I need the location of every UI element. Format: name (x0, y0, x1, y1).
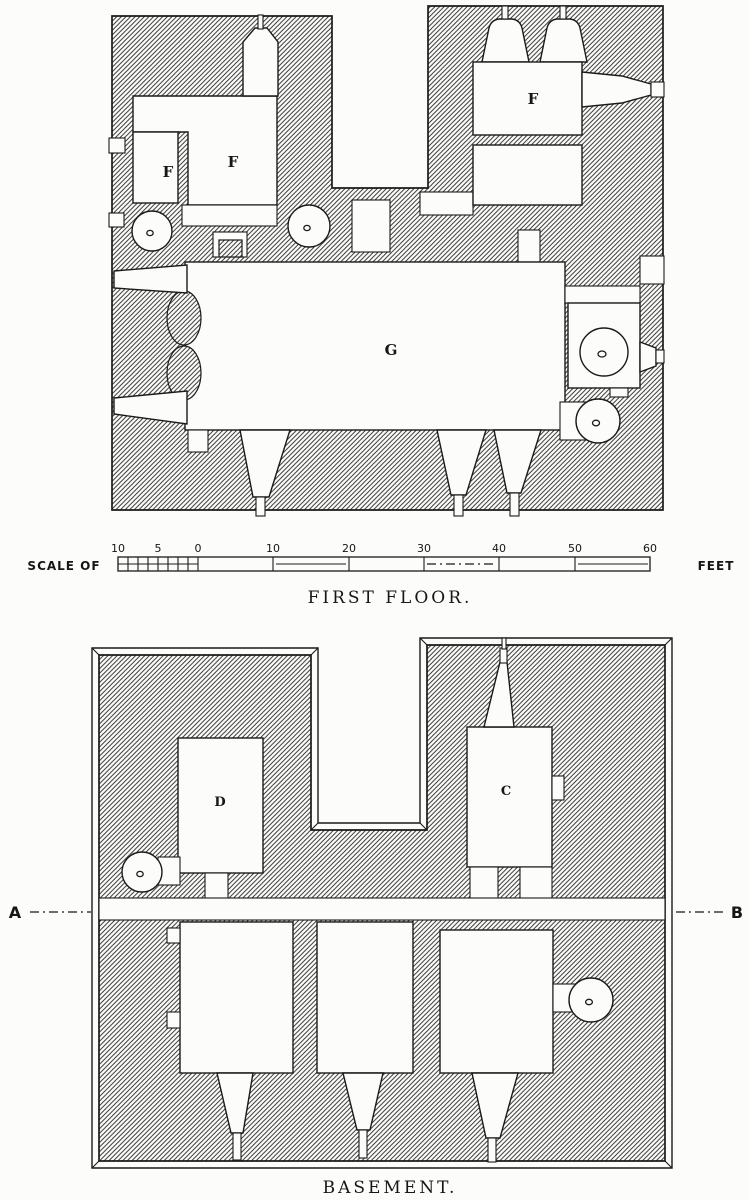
first-floor-caption: FIRST FLOOR. (308, 588, 473, 608)
scale-tick: 50 (568, 542, 582, 555)
scale-unit: FEET (698, 559, 735, 573)
corridor (182, 205, 277, 226)
scale-tick: 5 (155, 542, 162, 555)
scale-tick: 10 (111, 542, 125, 555)
scale-tick: 20 (342, 542, 356, 555)
spiral-stair-icon (122, 852, 162, 892)
wall-recess (167, 1012, 180, 1028)
wall-slit (258, 15, 263, 29)
spiral-stair-icon (569, 978, 613, 1022)
basement-caption: BASEMENT. (323, 1178, 458, 1198)
wall-recess (188, 430, 208, 452)
room-label-f-northeast: F (528, 90, 539, 108)
spiral-stair-icon (580, 328, 628, 376)
room-outline (317, 922, 413, 1073)
scale-tick: 30 (417, 542, 431, 555)
room-label-g: G (385, 341, 398, 359)
wall-slit (502, 6, 508, 19)
room-label-f-closet: F (163, 163, 174, 181)
room-outline (180, 922, 293, 1073)
doorway (552, 776, 564, 800)
room-label-c: C (501, 784, 511, 799)
spiral-stair-icon (288, 205, 330, 247)
wall-slit (560, 6, 566, 19)
passage (420, 192, 473, 215)
scale-bar: SCALE OF FEET 10 5 (27, 542, 734, 573)
wall-slit (502, 638, 506, 649)
scale-tick-labels: 10 5 0 10 20 30 40 50 60 (111, 542, 657, 555)
first-floor-plan: F F F G (109, 6, 664, 516)
passage (205, 873, 228, 900)
passage (99, 898, 665, 920)
wall-recess (167, 928, 180, 943)
room-label-f-hall: F (228, 153, 239, 171)
scale-tick: 0 (195, 542, 202, 555)
doorway (610, 388, 628, 397)
passage (352, 200, 390, 252)
scale-prefix: SCALE OF (27, 559, 100, 573)
room-outline (185, 262, 565, 430)
room-label-d: D (214, 795, 225, 810)
wall-slit (233, 1133, 241, 1160)
corridor (565, 286, 640, 303)
wall-slit (359, 1130, 367, 1158)
window-embrasure (640, 342, 656, 372)
engraved-floor-plans: F F F G SCALE OF FEET (0, 0, 750, 1200)
scale-tick: 10 (266, 542, 280, 555)
wall-slit (488, 1138, 496, 1162)
hearth-inner (219, 240, 242, 257)
spiral-stair-icon (576, 399, 620, 443)
doorway (518, 230, 540, 262)
basement-plan: D C (92, 638, 672, 1168)
wall-slit (500, 648, 507, 663)
wall-gap (640, 256, 664, 284)
wall-bulge (167, 291, 201, 345)
section-marker-b: B (731, 903, 743, 922)
wall-slit (510, 493, 519, 516)
wall-slit (256, 497, 265, 516)
wall-slit (651, 82, 664, 97)
wall-slit (109, 213, 124, 227)
passage (520, 867, 552, 899)
scale-tick: 40 (492, 542, 506, 555)
wall-slit (656, 350, 664, 363)
wall-slit (109, 138, 125, 153)
wall-slit (454, 495, 463, 516)
room-outline (440, 930, 553, 1073)
passage (470, 867, 498, 899)
section-marker-a: A (9, 903, 22, 922)
great-hall (114, 262, 565, 430)
spiral-stair-icon (132, 211, 172, 251)
turret-recess (243, 28, 278, 96)
room-outline (473, 145, 582, 205)
scale-tick: 60 (643, 542, 657, 555)
